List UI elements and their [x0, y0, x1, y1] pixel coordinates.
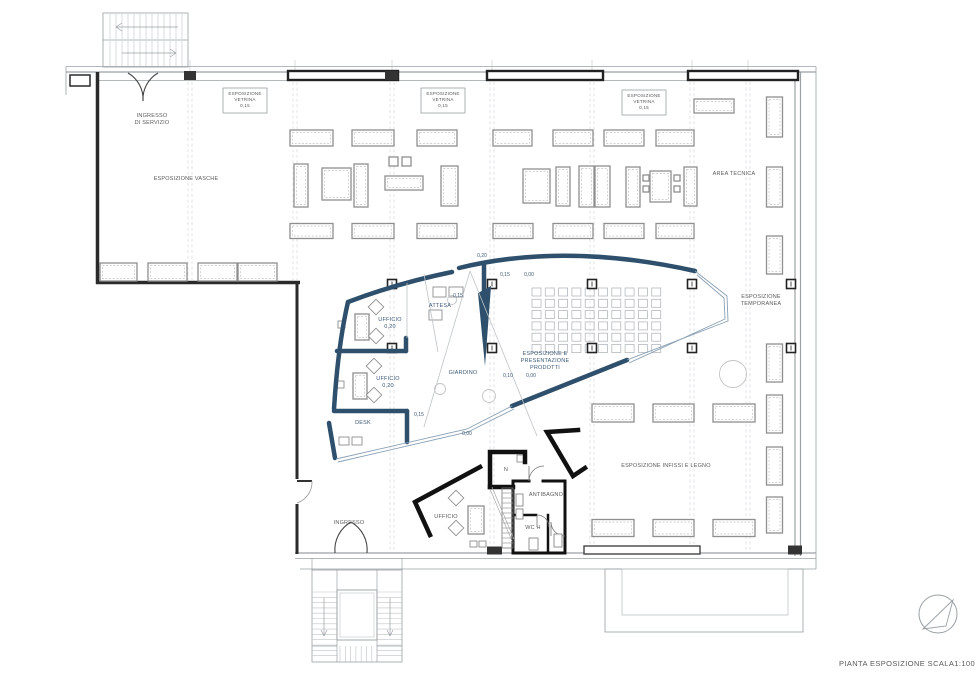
bottom-window-bar: [584, 546, 700, 554]
product-cell: [599, 311, 608, 319]
product-cell: [572, 333, 581, 341]
room-label-ufficio-1-line: 0,20: [384, 324, 396, 330]
north-arrow-icon: [923, 600, 953, 629]
room-label-n-room-line: N: [504, 467, 508, 473]
room-label-ingresso-di-servizio-line: DI SERVIZIO: [135, 120, 170, 126]
product-cell: [612, 299, 621, 307]
room-label-esposizione-presentazione-prodotti-line: PRESENTAZIONE: [521, 358, 570, 364]
showroom-furniture: [643, 186, 649, 192]
vetrina-label-line: VETRINA: [633, 99, 655, 104]
room-label-giardino: GIARDINO: [449, 370, 478, 376]
product-cell: [545, 288, 554, 296]
elevation-mark: 0,15: [500, 272, 510, 278]
product-cell: [599, 299, 608, 307]
core-wall: [459, 256, 695, 271]
room-label-wc-h-line: WC H: [525, 525, 540, 531]
core-outline: [338, 409, 514, 462]
chair: [366, 358, 382, 374]
product-cell: [559, 333, 568, 341]
room-label-attesa: ATTESA: [429, 303, 451, 309]
chair: [448, 490, 464, 506]
product-cell: [638, 288, 647, 296]
product-cell: [612, 322, 621, 330]
elevation-mark: 0,00: [526, 373, 536, 379]
showroom-furniture: [523, 169, 550, 203]
product-cell: [545, 322, 554, 330]
garden-line: [424, 271, 470, 427]
showroom-furniture: [556, 167, 570, 206]
elevation-mark: 0,00: [524, 272, 534, 278]
showroom-furniture: [294, 164, 308, 207]
chair: [366, 387, 382, 403]
showroom-furniture: [385, 176, 423, 190]
product-cell: [652, 322, 661, 330]
wall-pier: [184, 71, 196, 80]
room-label-wc-h: WC H: [525, 525, 540, 531]
product-cell: [572, 345, 581, 353]
showroom-furniture: [389, 157, 398, 166]
room-label-ingresso-line: INGRESSO: [334, 520, 365, 526]
product-cell: [532, 288, 541, 296]
furniture-layer: [100, 97, 783, 547]
building-shell: [66, 67, 816, 633]
floor-plan-page: INGRESSODI SERVIZIOESPOSIZIONE VASCHEARE…: [0, 0, 980, 675]
room-label-antibagno: ANTIBAGNO: [529, 492, 564, 498]
elevation-mark: 0,20: [477, 253, 487, 259]
core-wall: [329, 423, 335, 458]
sanitary-fixture: [529, 538, 538, 550]
product-cell: [638, 311, 647, 319]
room-label-ufficio-2-line: UFFICIO: [376, 376, 400, 382]
leader-line: [490, 489, 512, 541]
elevation-mark: 0,15: [453, 293, 463, 299]
vetrina-window-bar: [688, 71, 798, 80]
stair-arrow: [116, 27, 122, 31]
small-furniture: [479, 541, 486, 547]
floor-plan-drawing: INGRESSODI SERVIZIOESPOSIZIONE VASCHEARE…: [0, 0, 980, 675]
product-cell: [532, 333, 541, 341]
showroom-furniture: [626, 167, 640, 207]
stair-arrow: [170, 49, 176, 53]
north-symbol-group: [919, 595, 957, 633]
room-label-ufficio-2: UFFICIO0,20: [376, 376, 400, 389]
product-cell: [572, 299, 581, 307]
elevation-mark: 0,15: [414, 412, 424, 418]
vetrina-window-bar: [288, 71, 398, 80]
room-label-ingresso-di-servizio: INGRESSODI SERVIZIO: [135, 113, 170, 126]
elevation-mark: 0,00: [462, 431, 472, 437]
core-wedge: [478, 286, 491, 366]
vetrina-window-bar: [487, 71, 603, 80]
product-cell: [599, 322, 608, 330]
product-cell: [572, 311, 581, 319]
lower-terrace: [622, 569, 788, 615]
product-cell: [612, 333, 621, 341]
product-cell: [652, 299, 661, 307]
office-desk: [353, 373, 367, 399]
product-cell: [532, 311, 541, 319]
product-cell: [625, 311, 634, 319]
wall-pier: [385, 71, 398, 80]
product-cell: [652, 311, 661, 319]
chair: [368, 328, 384, 344]
showroom-furniture: [674, 175, 680, 181]
drawing-title: PIANTA ESPOSIZIONE SCALA1:100: [839, 659, 975, 668]
room-label-esposizione-temporanea: ESPOSIZIONETEMPORANEA: [741, 294, 782, 307]
stair-arrow: [387, 630, 390, 636]
room-label-ufficio-1: UFFICIO0,20: [378, 317, 402, 330]
room-label-esposizione-infissi-legno: ESPOSIZIONE INFISSI E LEGNO: [621, 463, 711, 469]
product-cell: [625, 345, 634, 353]
showroom-furniture: [650, 171, 671, 202]
room-label-n-room: N: [504, 467, 508, 473]
vetrina-label-line: VETRINA: [234, 97, 256, 102]
double-door-leaf: [143, 73, 158, 101]
room-label-esposizione-temporanea-line: ESPOSIZIONE: [741, 294, 781, 300]
product-cell: [625, 322, 634, 330]
room-label-esposizione-presentazione-prodotti: ESPOSIZIONE EPRESENTAZIONEPRODOTTI: [521, 351, 570, 371]
product-cell: [559, 288, 568, 296]
stair-arrow: [116, 23, 122, 27]
room-label-giardino-line: GIARDINO: [449, 370, 478, 376]
door-swing: [529, 466, 544, 481]
product-cell: [545, 333, 554, 341]
product-cell: [559, 322, 568, 330]
showroom-furniture: [674, 186, 680, 192]
room-label-ufficio-basso: UFFICIO: [434, 514, 458, 520]
product-cell: [612, 288, 621, 296]
stair-arrow: [324, 630, 327, 636]
product-cell: [638, 333, 647, 341]
core-wall: [334, 302, 348, 409]
vetrina-label-line: VETRINA: [432, 97, 454, 102]
small-furniture: [352, 437, 362, 445]
double-door-leaf: [335, 522, 351, 553]
product-cell: [559, 299, 568, 307]
room-label-area-tecnica: AREA TECNICA: [713, 171, 756, 177]
product-cell: [532, 299, 541, 307]
small-furniture: [339, 437, 349, 445]
room-label-ingresso-di-servizio-line: INGRESSO: [137, 113, 168, 119]
showroom-furniture: [684, 167, 697, 206]
showroom-furniture: [402, 157, 411, 166]
elevator-cab: [340, 593, 374, 637]
room-label-desk: DESK: [355, 420, 371, 426]
product-cell: [559, 311, 568, 319]
product-cell: [625, 333, 634, 341]
sanitary-fixture: [516, 494, 523, 506]
product-cell: [572, 322, 581, 330]
product-cell: [545, 299, 554, 307]
product-cell: [599, 345, 608, 353]
room-label-antibagno-line: ANTIBAGNO: [529, 492, 564, 498]
core-outline: [627, 271, 728, 360]
room-labels-layer: INGRESSODI SERVIZIOESPOSIZIONE VASCHEARE…: [135, 88, 782, 531]
room-label-esposizione-vasche: ESPOSIZIONE VASCHE: [154, 176, 219, 182]
room-label-ufficio-1-line: UFFICIO: [378, 317, 402, 323]
round-element: [483, 390, 496, 403]
office-desk: [355, 314, 369, 340]
round-element: [720, 361, 747, 388]
elevator-shaft: [337, 590, 377, 640]
product-cell: [625, 288, 634, 296]
small-furniture: [470, 541, 477, 547]
wall-pier: [788, 546, 802, 555]
showroom-furniture: [643, 175, 649, 181]
room-label-esposizione-presentazione-prodotti-line: ESPOSIZIONE E: [522, 351, 567, 357]
room-label-area-tecnica-line: AREA TECNICA: [713, 171, 756, 177]
sanitary-fixture: [516, 509, 523, 519]
chair: [368, 299, 384, 315]
stair-arrow: [390, 630, 393, 636]
lower-terrace: [605, 569, 803, 632]
product-cell: [638, 345, 647, 353]
product-cell: [638, 299, 647, 307]
room-label-esposizione-presentazione-prodotti-line: PRODOTTI: [530, 365, 560, 371]
room-label-esposizione-infissi-legno-line: ESPOSIZIONE INFISSI E LEGNO: [621, 463, 711, 469]
wall-pier: [70, 75, 90, 86]
vetrina-label-line: ESPOSIZIONE: [627, 93, 660, 98]
product-cell: [612, 345, 621, 353]
vetrina-label-line: 0,15: [240, 103, 250, 108]
display-table: [694, 99, 734, 113]
vetrina-label-line: 0,15: [639, 105, 649, 110]
product-cell: [599, 333, 608, 341]
product-cell: [545, 311, 554, 319]
product-cell: [652, 288, 661, 296]
product-cell: [652, 333, 661, 341]
product-cell: [532, 322, 541, 330]
room-label-attesa-line: ATTESA: [429, 303, 451, 309]
product-cell: [625, 299, 634, 307]
vetrina-label-line: 0,15: [438, 103, 448, 108]
product-cell: [638, 322, 647, 330]
double-door-leaf: [351, 522, 367, 553]
stair-arrow: [170, 53, 176, 57]
small-furniture: [433, 287, 446, 297]
product-cell: [572, 288, 581, 296]
sanitary-fixture: [554, 534, 562, 547]
room-label-esposizione-temporanea-line: TEMPORANEA: [741, 301, 782, 307]
room-label-ufficio-2-line: 0,20: [382, 383, 394, 389]
vetrina-label-line: ESPOSIZIONE: [426, 91, 459, 96]
chair: [448, 520, 464, 536]
stairwell-bottom: [312, 570, 402, 662]
showroom-furniture: [322, 168, 351, 200]
room-label-ingresso: INGRESSO: [334, 520, 365, 526]
product-cell: [612, 311, 621, 319]
product-cell: [599, 288, 608, 296]
room-label-desk-line: DESK: [355, 420, 371, 426]
stair-arrow: [321, 630, 324, 636]
core-outline: [336, 406, 512, 459]
wall-pier: [487, 547, 502, 555]
double-door-leaf: [128, 73, 143, 101]
vetrina-label-line: ESPOSIZIONE: [228, 91, 261, 96]
elevation-mark: 0,10: [503, 373, 513, 379]
door-swing: [297, 481, 312, 503]
showroom-furniture: [354, 164, 368, 207]
partition-wall: [547, 430, 585, 476]
room-label-ufficio-basso-line: UFFICIO: [434, 514, 458, 520]
room-label-esposizione-vasche-line: ESPOSIZIONE VASCHE: [154, 176, 219, 182]
